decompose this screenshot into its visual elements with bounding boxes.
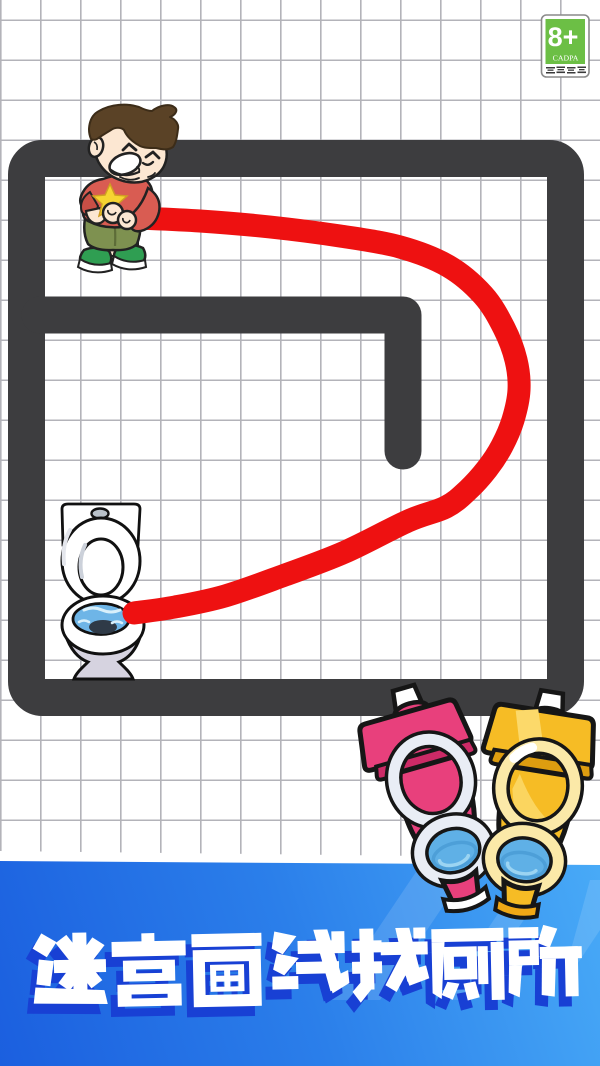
svg-text:CADPA: CADPA [553,54,579,63]
svg-text:8+: 8+ [548,22,579,52]
